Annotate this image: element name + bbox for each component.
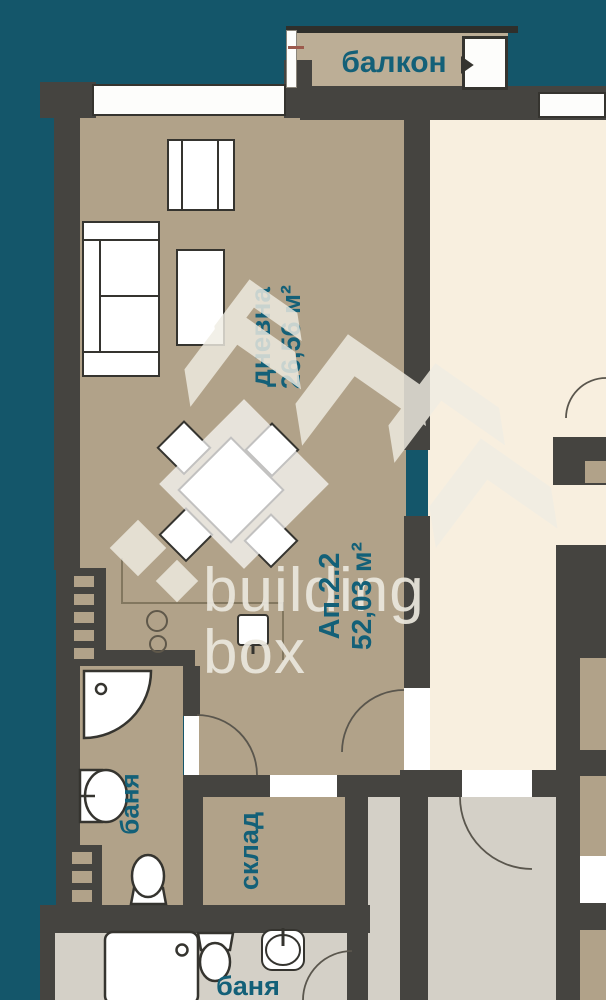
floor-plan: building box балкон дневна 26,56 м² Ап.2… (0, 0, 606, 1000)
watermark-logo (0, 0, 606, 1000)
logo-chevron (420, 429, 558, 548)
logo-diamond (110, 399, 329, 602)
